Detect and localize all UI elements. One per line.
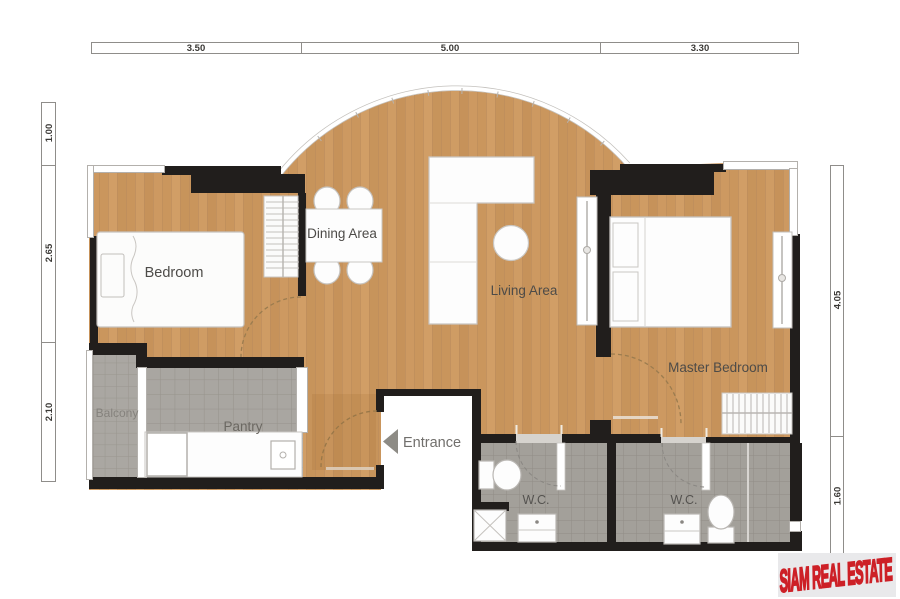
svg-text:Living Area: Living Area — [491, 283, 558, 298]
svg-text:5.00: 5.00 — [441, 43, 460, 54]
svg-text:Dining Area: Dining Area — [307, 226, 377, 241]
svg-text:Balcony: Balcony — [96, 406, 139, 420]
svg-text:Master Bedroom: Master Bedroom — [668, 360, 768, 375]
svg-text:3.30: 3.30 — [691, 43, 710, 54]
svg-text:W.C.: W.C. — [522, 493, 549, 507]
svg-text:Bedroom: Bedroom — [145, 265, 204, 281]
svg-text:1.60: 1.60 — [833, 487, 844, 506]
svg-text:Entrance: Entrance — [403, 435, 461, 451]
svg-text:1.00: 1.00 — [44, 124, 55, 143]
svg-text:Pantry: Pantry — [223, 419, 262, 434]
svg-text:4.05: 4.05 — [833, 290, 844, 309]
svg-text:2.65: 2.65 — [44, 243, 55, 262]
svg-text:W.C.: W.C. — [670, 493, 697, 507]
svg-text:3.50: 3.50 — [187, 43, 206, 54]
svg-text:2.10: 2.10 — [44, 403, 55, 422]
